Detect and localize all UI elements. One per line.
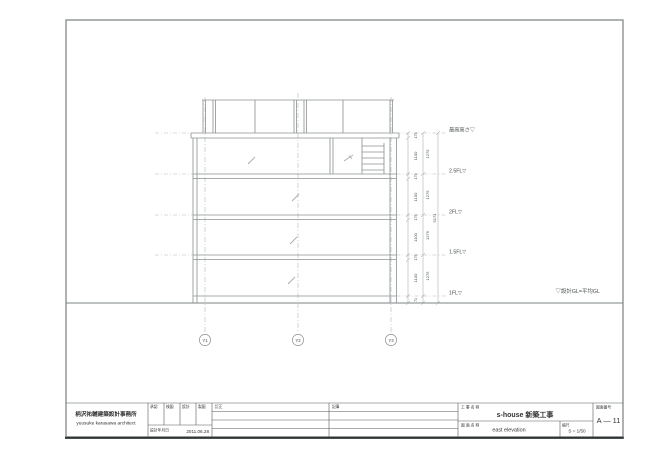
sign-col-drawn: 製図 bbox=[198, 404, 206, 409]
sign-col-designed: 設計 bbox=[182, 404, 190, 409]
elevation-linework bbox=[191, 100, 399, 303]
sheet-number-label: 図面番号 bbox=[596, 405, 611, 410]
elevation-drawing: ▽設計GL=平均GL Y1 Y2 Y3 bbox=[0, 0, 650, 459]
rev-col-note: 記事 bbox=[332, 404, 340, 409]
dim-floor: 1275 bbox=[425, 230, 430, 240]
sheet-frame bbox=[65, 20, 624, 438]
title-block: 柄沢祐輔建築設計事務所 yuusuke karasawa architect 承… bbox=[66, 403, 623, 437]
sign-col-approved: 承認 bbox=[150, 404, 158, 409]
dim-inner: 175 bbox=[414, 174, 418, 180]
dim-inner: 1100 bbox=[413, 273, 418, 282]
dim-total: 5171 bbox=[432, 213, 437, 223]
grid-label-y1: Y1 bbox=[202, 338, 208, 343]
level-label-1fl: 1FL▽ bbox=[449, 291, 462, 297]
dim-inner: 175 bbox=[414, 133, 418, 139]
dim-inner: 1100 bbox=[413, 232, 418, 241]
grid-bubbles: Y1 Y2 Y3 bbox=[199, 334, 396, 345]
architect-name-jp: 柄沢祐輔建築設計事務所 bbox=[75, 410, 137, 418]
dim-gl: 71 bbox=[414, 298, 418, 302]
level-labels: 最高高さ▽ 2.5FL▽ 2FL▽ 1.5FL▽ 1FL▽ bbox=[449, 126, 476, 297]
dimension-texts: 175 1100 175 1100 175 1100 175 1100 71 1… bbox=[413, 133, 437, 303]
rev-col-revision: 訂正 bbox=[215, 404, 223, 409]
architect-name-en: yuusuke karasawa architect bbox=[76, 421, 136, 427]
level-label-2fl: 2FL▽ bbox=[449, 210, 462, 216]
level-label-max: 最高高さ▽ bbox=[449, 126, 476, 134]
scale-value: S = 1/50 bbox=[568, 429, 586, 434]
dim-inner: 175 bbox=[414, 215, 418, 221]
date-value: 2011.06.28 bbox=[186, 429, 209, 434]
dim-inner: 175 bbox=[414, 255, 418, 261]
dim-inner: 1100 bbox=[413, 151, 418, 160]
level-label-25fl: 2.5FL▽ bbox=[449, 169, 466, 175]
grid-label-y3: Y3 bbox=[388, 338, 394, 343]
dim-floor: 1275 bbox=[425, 149, 430, 159]
grid-label-y2: Y2 bbox=[295, 338, 301, 343]
scale-label: 縮尺 bbox=[562, 423, 570, 428]
drawing-name-value: east elevation bbox=[492, 428, 525, 434]
dim-inner: 1100 bbox=[413, 192, 418, 201]
dim-floor: 1275 bbox=[425, 271, 430, 281]
level-extension-lines bbox=[155, 133, 447, 296]
dim-floor: 1275 bbox=[425, 190, 430, 200]
project-name-value: s-house 新築工事 bbox=[497, 410, 554, 419]
drawing-sheet: ▽設計GL=平均GL Y1 Y2 Y3 bbox=[0, 0, 650, 459]
level-label-15fl: 1.5FL▽ bbox=[449, 250, 466, 256]
gl-label: ▽設計GL=平均GL bbox=[556, 287, 600, 295]
sheet-number-value: A — 11 bbox=[597, 416, 621, 425]
drawing-name-label: 図 面 名 称 bbox=[461, 423, 480, 428]
date-label: 設計年月日 bbox=[150, 428, 169, 433]
grid-lines bbox=[205, 93, 391, 333]
sign-col-checked: 検図 bbox=[166, 404, 174, 409]
project-name-label: 工 事 名 称 bbox=[461, 405, 480, 410]
